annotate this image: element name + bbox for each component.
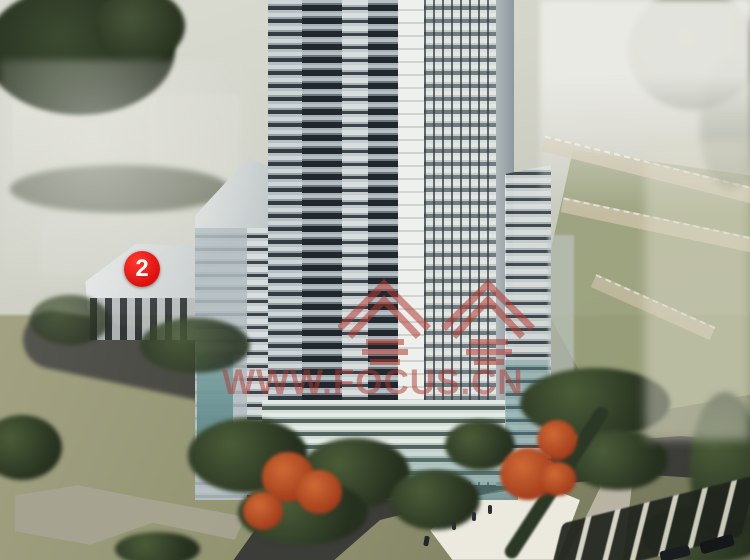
pedestrian [452, 522, 456, 530]
annotation-marker-2[interactable]: 2 [124, 251, 160, 287]
tree-green [390, 470, 480, 530]
tree-autumn [243, 492, 283, 530]
tree-autumn [540, 462, 576, 496]
rendering-scene: WWW.FOCUS.CN 2 [0, 0, 750, 560]
tree-green [30, 295, 110, 345]
tree-autumn [296, 470, 342, 514]
watermark-url-text: WWW.FOCUS.CN [222, 363, 524, 403]
focus-logo-icon [338, 276, 548, 368]
pedestrian [472, 512, 476, 521]
focus-logo-characters [362, 342, 512, 362]
annotation-marker-label: 2 [135, 255, 148, 283]
tree-autumn [537, 420, 577, 460]
pedestrian [488, 505, 492, 514]
haze-right-band [645, 140, 750, 440]
tree-green [115, 532, 200, 560]
